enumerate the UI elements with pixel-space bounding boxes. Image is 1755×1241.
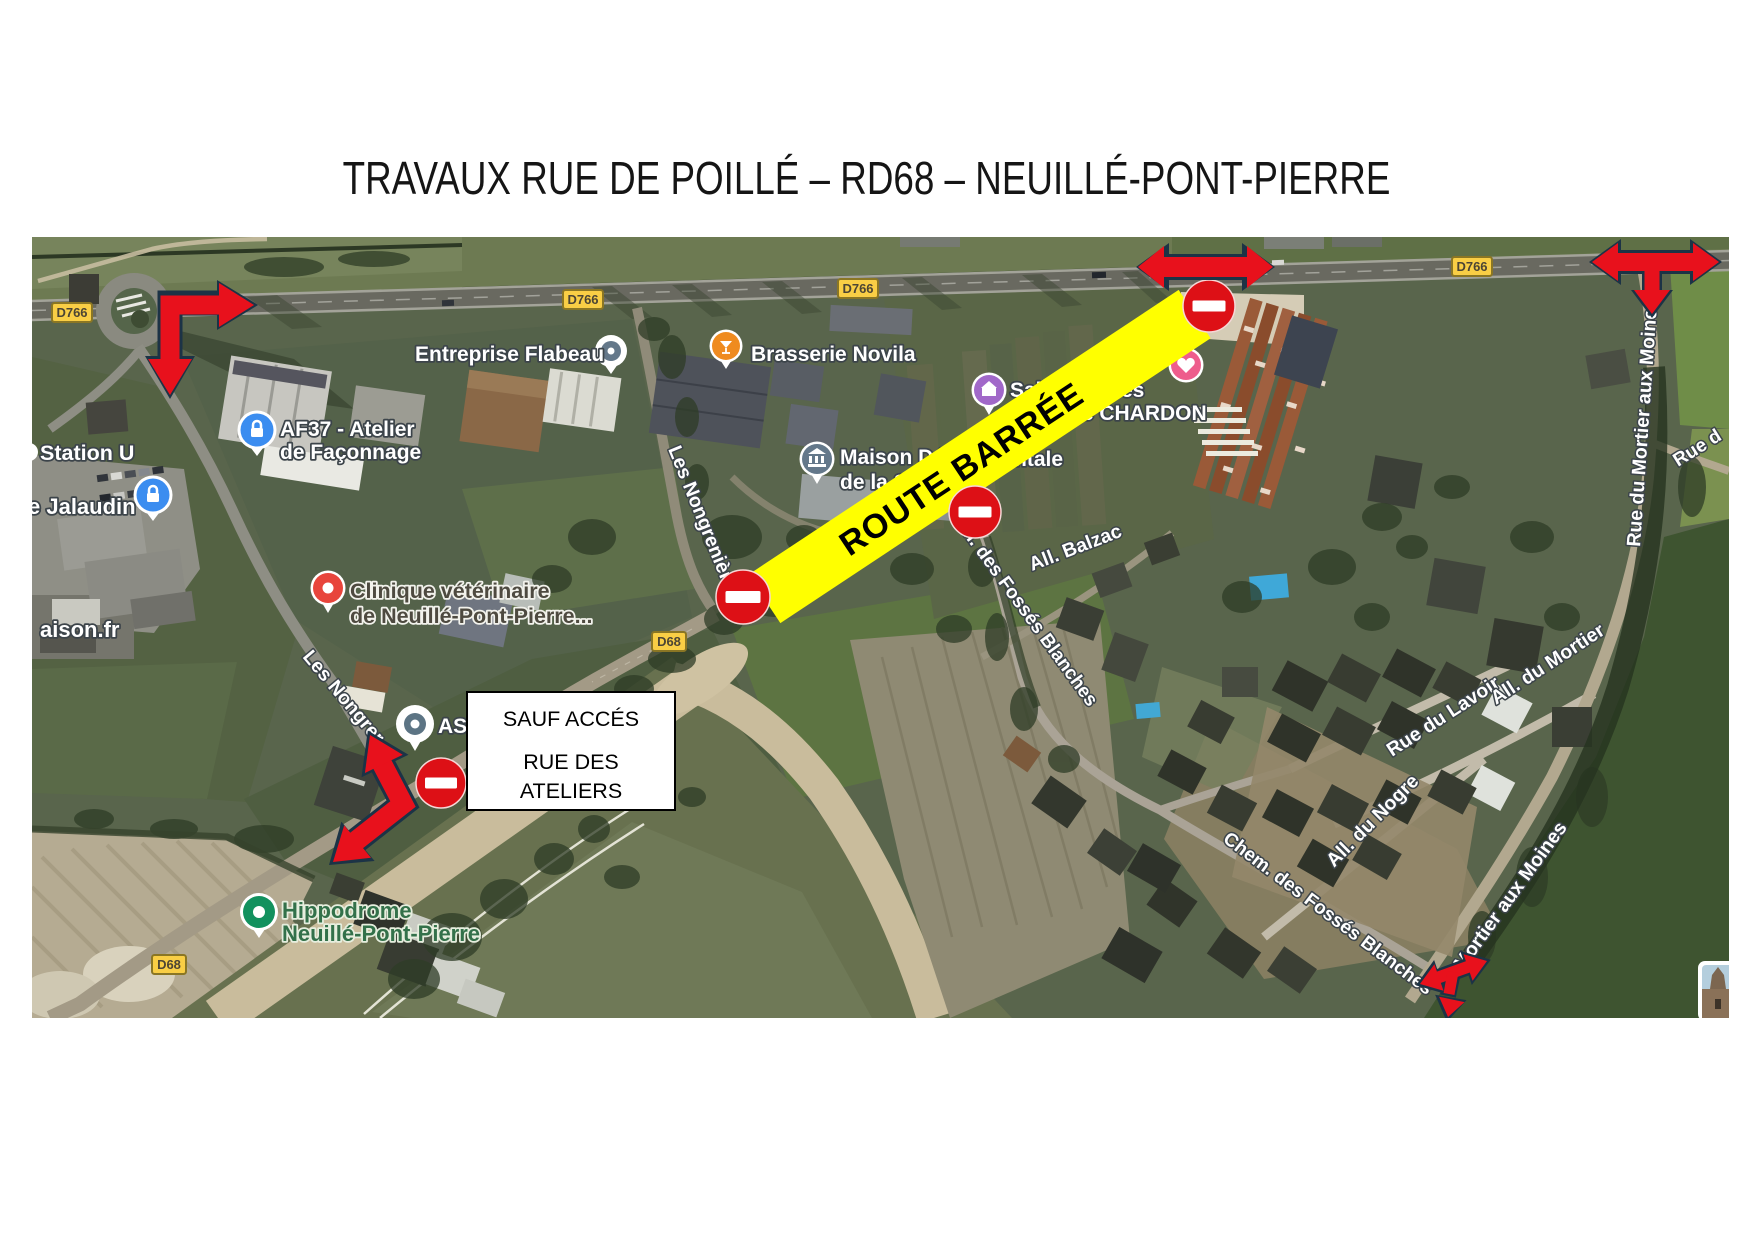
svg-text:Hippodrome: Hippodrome xyxy=(282,898,412,923)
svg-text:RUE DES: RUE DES xyxy=(523,750,619,774)
svg-text:Brasserie Novila: Brasserie Novila xyxy=(751,343,916,366)
svg-text:D766: D766 xyxy=(567,292,598,307)
svg-text:D766: D766 xyxy=(56,305,87,320)
svg-text:SAUF ACCÉS: SAUF ACCÉS xyxy=(503,706,639,731)
svg-text:AF37 - Atelier: AF37 - Atelier xyxy=(280,418,415,441)
svg-text:ATELIERS: ATELIERS xyxy=(520,779,622,803)
svg-text:D766: D766 xyxy=(1456,259,1487,274)
svg-text:aison.fr: aison.fr xyxy=(40,617,120,642)
svg-text:Station U: Station U xyxy=(40,441,134,465)
svg-text:Entreprise Flabeau: Entreprise Flabeau xyxy=(415,343,604,366)
svg-text:Neuillé-Pont-Pierre: Neuillé-Pont-Pierre xyxy=(282,921,480,946)
svg-text:de Neuillé-Pont-Pierre...: de Neuillé-Pont-Pierre... xyxy=(350,604,593,628)
svg-text:Clinique vétérinaire: Clinique vétérinaire xyxy=(350,579,550,603)
svg-text:D68: D68 xyxy=(657,634,681,649)
svg-text:e Jalaudin: e Jalaudin xyxy=(32,494,136,519)
svg-text:D68: D68 xyxy=(157,957,181,972)
svg-text:de Façonnage: de Façonnage xyxy=(280,441,421,464)
svg-text:D766: D766 xyxy=(842,281,873,296)
svg-text:AS: AS xyxy=(438,715,467,738)
